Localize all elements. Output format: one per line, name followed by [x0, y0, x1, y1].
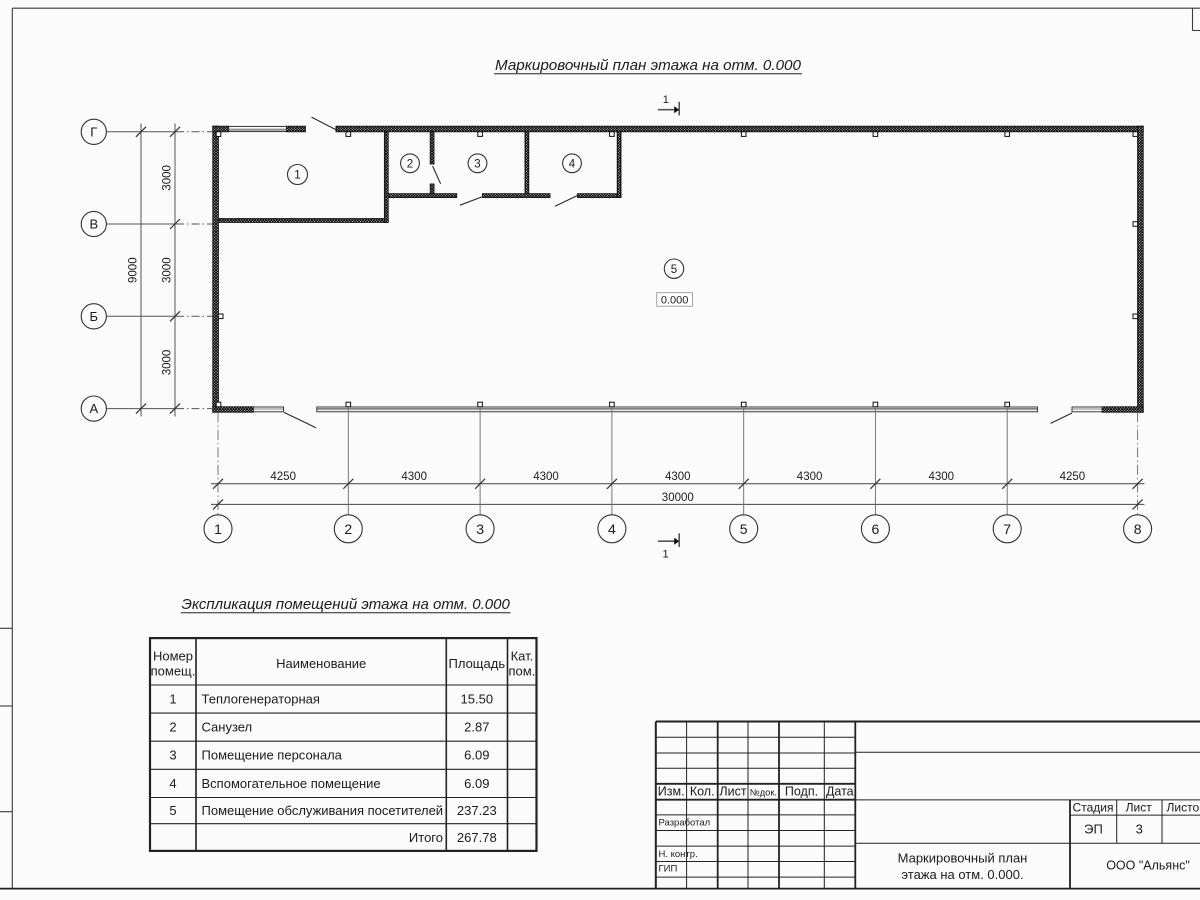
svg-text:Г: Г — [90, 124, 97, 139]
svg-text:1: 1 — [169, 692, 176, 707]
svg-text:15.50: 15.50 — [461, 692, 494, 707]
svg-text:Кат.: Кат. — [511, 649, 534, 664]
svg-text:8: 8 — [1134, 521, 1142, 537]
svg-text:А: А — [89, 401, 98, 416]
svg-text:3000: 3000 — [162, 350, 174, 376]
svg-text:Н. контр.: Н. контр. — [659, 849, 698, 860]
svg-text:2: 2 — [407, 158, 413, 170]
svg-text:Площадь: Площадь — [449, 656, 506, 671]
svg-text:Номер: Номер — [153, 649, 193, 664]
svg-text:3: 3 — [1136, 822, 1143, 837]
svg-text:5: 5 — [740, 521, 748, 537]
svg-text:3: 3 — [474, 158, 480, 170]
svg-text:помещ.: помещ. — [151, 664, 196, 679]
svg-text:Лист: Лист — [1126, 801, 1153, 815]
svg-text:3: 3 — [476, 521, 484, 537]
svg-text:Стадия: Стадия — [1073, 801, 1114, 815]
svg-text:1: 1 — [663, 94, 669, 106]
svg-text:Итого: Итого — [409, 830, 443, 845]
svg-text:ЭП: ЭП — [1084, 822, 1103, 837]
svg-text:Помещение персонала: Помещение персонала — [202, 748, 343, 763]
svg-text:4300: 4300 — [401, 471, 427, 483]
svg-text:1: 1 — [294, 170, 300, 182]
svg-text:Маркировочный план этажа на от: Маркировочный план этажа на отм. 0.000 — [495, 57, 801, 74]
svg-text:5: 5 — [169, 803, 176, 818]
svg-text:4300: 4300 — [533, 471, 559, 483]
svg-text:4: 4 — [169, 776, 176, 791]
svg-text:Вспомогательное помещение: Вспомогательное помещение — [202, 776, 381, 791]
svg-text:В: В — [89, 217, 98, 232]
svg-text:9000: 9000 — [128, 257, 140, 283]
svg-text:Наименование: Наименование — [276, 656, 366, 671]
svg-text:Кол.: Кол. — [690, 785, 715, 799]
svg-text:ГИП: ГИП — [659, 864, 678, 875]
svg-text:Лист: Лист — [719, 785, 746, 799]
svg-text:6.09: 6.09 — [464, 748, 489, 763]
svg-text:4250: 4250 — [1060, 471, 1086, 483]
svg-text:пом.: пом. — [508, 664, 535, 679]
svg-text:30000: 30000 — [662, 492, 694, 504]
svg-text:6: 6 — [872, 521, 880, 537]
svg-text:2: 2 — [344, 521, 352, 537]
svg-text:№док.: №док. — [750, 788, 777, 798]
svg-text:4300: 4300 — [929, 471, 955, 483]
svg-text:3000: 3000 — [162, 257, 174, 283]
svg-text:267.78: 267.78 — [457, 830, 497, 845]
svg-text:6.09: 6.09 — [464, 776, 489, 791]
svg-text:3000: 3000 — [162, 165, 174, 191]
svg-text:4250: 4250 — [270, 471, 296, 483]
svg-text:Маркировочный план: Маркировочный план — [898, 851, 1028, 866]
svg-text:3: 3 — [169, 748, 176, 763]
svg-text:1: 1 — [214, 521, 222, 537]
svg-text:ООО "Альянс": ООО "Альянс" — [1106, 859, 1190, 873]
svg-text:237.23: 237.23 — [457, 803, 497, 818]
svg-text:7: 7 — [1003, 521, 1011, 537]
svg-text:4300: 4300 — [797, 471, 823, 483]
svg-text:Помещение обслуживания посетит: Помещение обслуживания посетителей — [202, 803, 444, 818]
svg-text:2.87: 2.87 — [464, 720, 489, 735]
svg-text:Подп.: Подп. — [785, 785, 818, 799]
svg-text:Б: Б — [90, 309, 99, 324]
svg-text:Санузел: Санузел — [202, 720, 253, 735]
svg-text:Разработал: Разработал — [659, 818, 711, 829]
svg-text:Дата: Дата — [826, 785, 854, 799]
svg-text:1: 1 — [662, 549, 668, 561]
svg-text:Изм.: Изм. — [658, 785, 685, 799]
svg-text:Листов: Листов — [1167, 801, 1200, 815]
svg-text:4300: 4300 — [665, 471, 691, 483]
svg-text:4: 4 — [569, 158, 576, 170]
svg-text:0.000: 0.000 — [661, 295, 689, 307]
svg-text:4: 4 — [608, 521, 616, 537]
svg-text:этажа на отм. 0.000.: этажа на отм. 0.000. — [901, 867, 1023, 882]
svg-text:Теплогенераторная: Теплогенераторная — [202, 692, 320, 707]
svg-text:5: 5 — [671, 264, 677, 276]
svg-text:Экспликация помещений этажа на: Экспликация помещений этажа на отм. 0.00… — [182, 596, 511, 613]
svg-text:2: 2 — [169, 720, 176, 735]
